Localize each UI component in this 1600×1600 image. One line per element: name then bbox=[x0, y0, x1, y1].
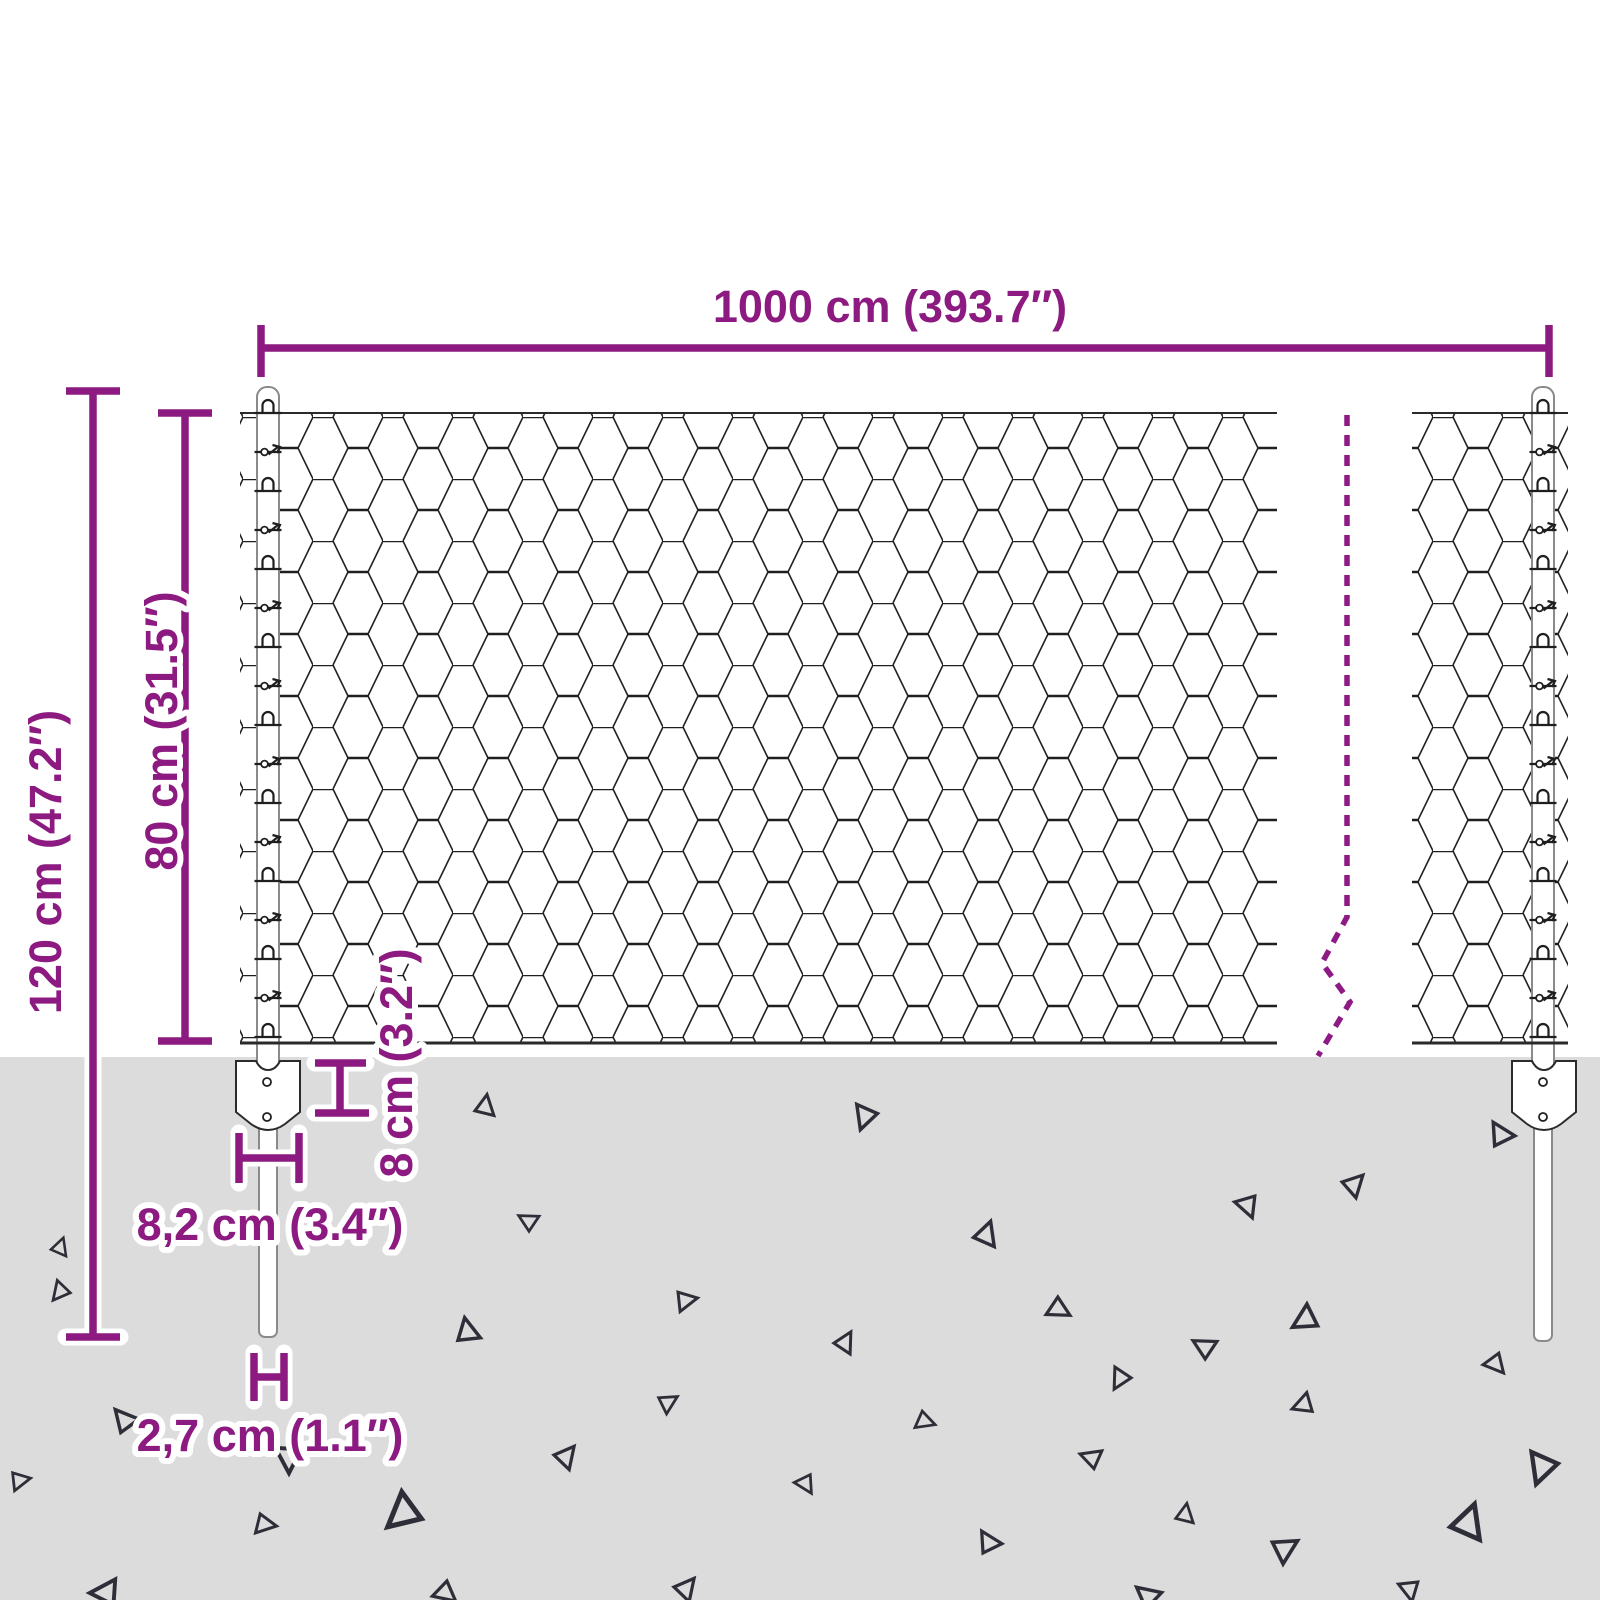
right-bracket-hole-bottom bbox=[1539, 1113, 1547, 1121]
post-hole bbox=[261, 527, 268, 534]
left-bracket-hole-top bbox=[263, 1078, 271, 1086]
post-hole bbox=[261, 605, 268, 612]
total-width-label: 1000 cm (393.7″) bbox=[713, 281, 1067, 332]
post-hole bbox=[261, 683, 268, 690]
post-height-label: 120 cm (47.2″) bbox=[20, 710, 71, 1014]
post-hole bbox=[1536, 683, 1543, 690]
anchor-depth-label: 8 cm (3.2″) bbox=[371, 948, 422, 1177]
right-bracket-hole-top bbox=[1539, 1078, 1547, 1086]
diagram-svg: 1000 cm (393.7″) 120 cm (47.2″) 80 cm (3… bbox=[0, 0, 1600, 1600]
left-bracket-hole-bottom bbox=[263, 1113, 271, 1121]
post-hole bbox=[1536, 839, 1543, 846]
fence-dimension-diagram: 1000 cm (393.7″) 120 cm (47.2″) 80 cm (3… bbox=[0, 0, 1600, 1600]
post-hole bbox=[261, 995, 268, 1002]
post-hole bbox=[261, 761, 268, 768]
fence-height-label: 80 cm (31.5″) bbox=[136, 591, 187, 870]
post-hole bbox=[1536, 449, 1543, 456]
post-hole bbox=[261, 449, 268, 456]
post-hole bbox=[1536, 605, 1543, 612]
post-hole bbox=[1536, 761, 1543, 768]
post-hole bbox=[1536, 995, 1543, 1002]
post-hole bbox=[1536, 917, 1543, 924]
anchor-width-label: 8,2 cm (3.4″) bbox=[137, 1199, 404, 1250]
post-hole bbox=[261, 917, 268, 924]
post-hole bbox=[1536, 527, 1543, 534]
post-hole bbox=[261, 839, 268, 846]
post-width-label: 2,7 cm (1.1″) bbox=[137, 1410, 404, 1461]
